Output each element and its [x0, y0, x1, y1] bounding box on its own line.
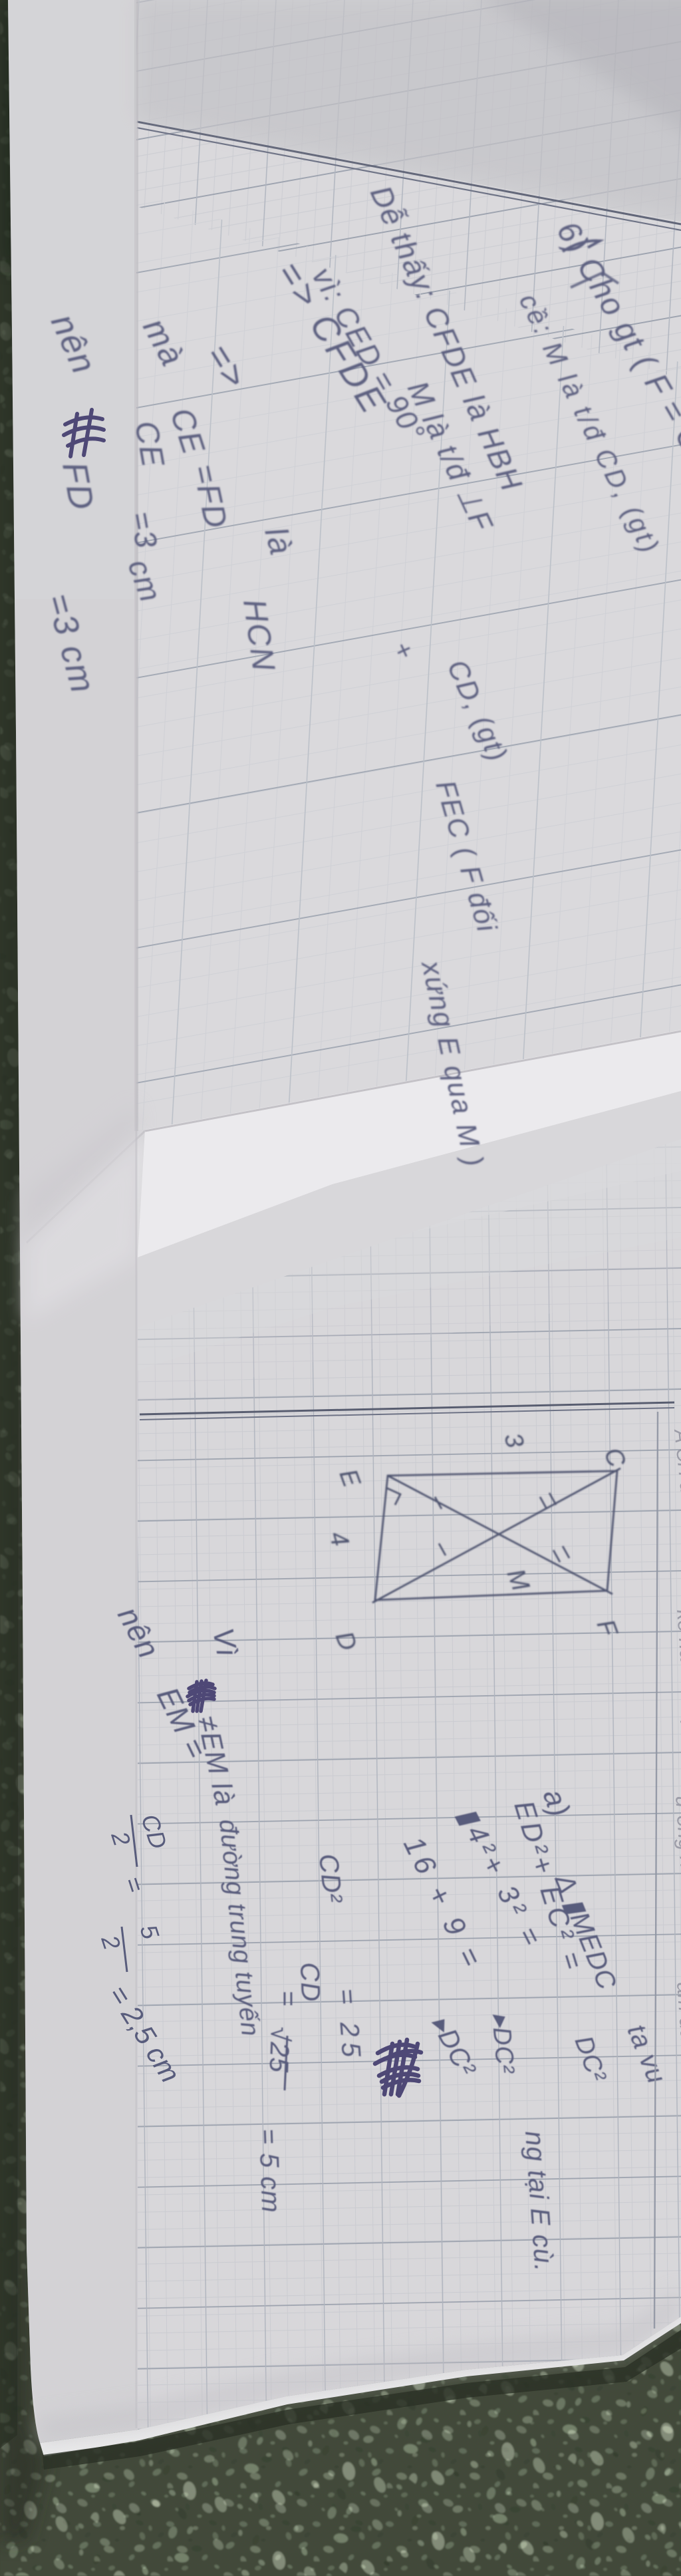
svg-text:=3: =3 — [124, 509, 164, 552]
svg-text:=: = — [273, 1991, 303, 2007]
svg-text:√25: √25 — [264, 2026, 295, 2074]
svg-text:= 25: = 25 — [332, 1988, 366, 2064]
svg-text:▸DC²: ▸DC² — [486, 2012, 519, 2075]
svg-text:CD²: CD² — [313, 1852, 348, 1905]
svg-text:Vì: Vì — [206, 1625, 243, 1659]
svg-text:= 5 cm: = 5 cm — [253, 2128, 285, 2214]
